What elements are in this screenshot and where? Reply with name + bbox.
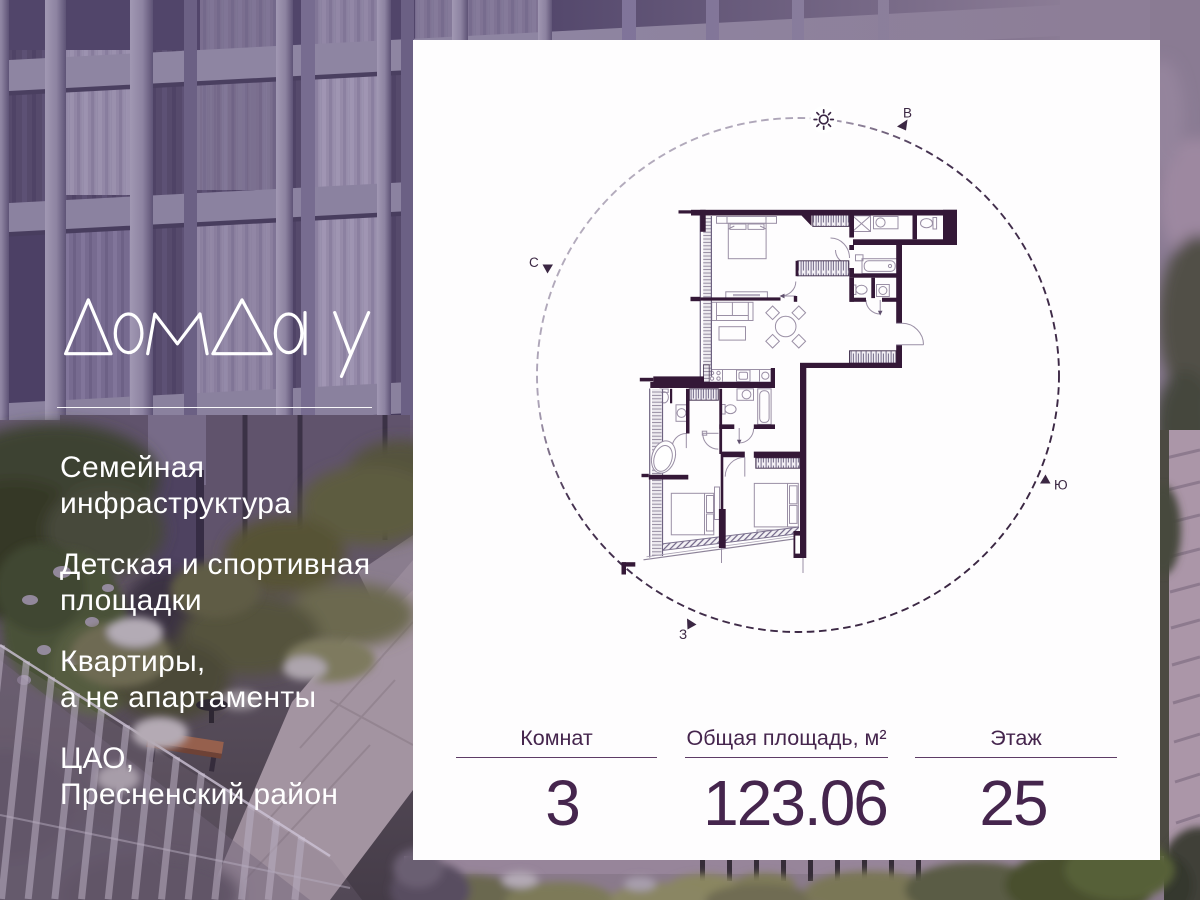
svg-text:З: З [679, 627, 687, 642]
svg-text:Ю: Ю [1054, 478, 1068, 493]
svg-text:С: С [529, 255, 539, 270]
svg-text:В: В [903, 106, 912, 121]
